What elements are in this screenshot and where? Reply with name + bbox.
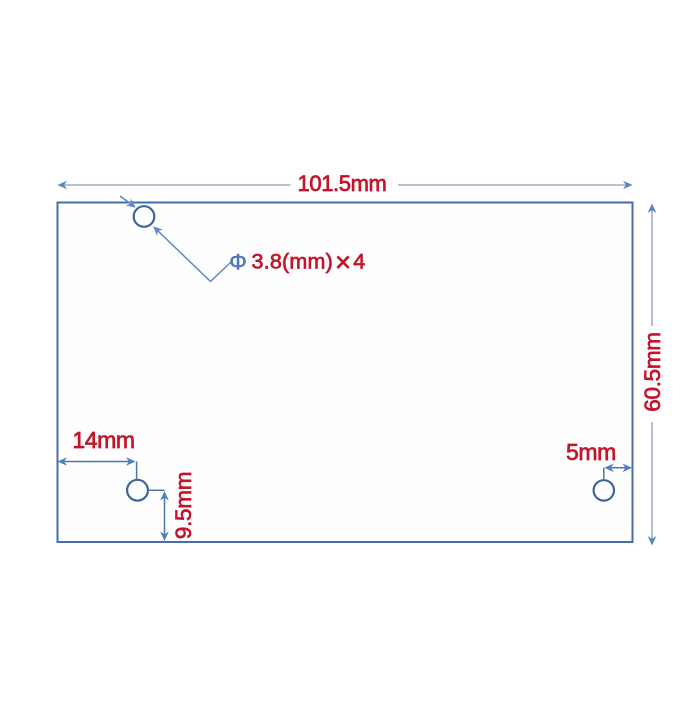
svg-text:14mm: 14mm bbox=[72, 427, 134, 453]
svg-text:9.5mm: 9.5mm bbox=[171, 472, 196, 539]
svg-text:3.8(mm)×4: 3.8(mm)×4 bbox=[252, 246, 366, 277]
svg-text:Φ: Φ bbox=[229, 249, 247, 274]
svg-text:60.5mm: 60.5mm bbox=[640, 332, 665, 411]
svg-text:101.5mm: 101.5mm bbox=[298, 171, 387, 196]
svg-text:5mm: 5mm bbox=[566, 439, 616, 465]
